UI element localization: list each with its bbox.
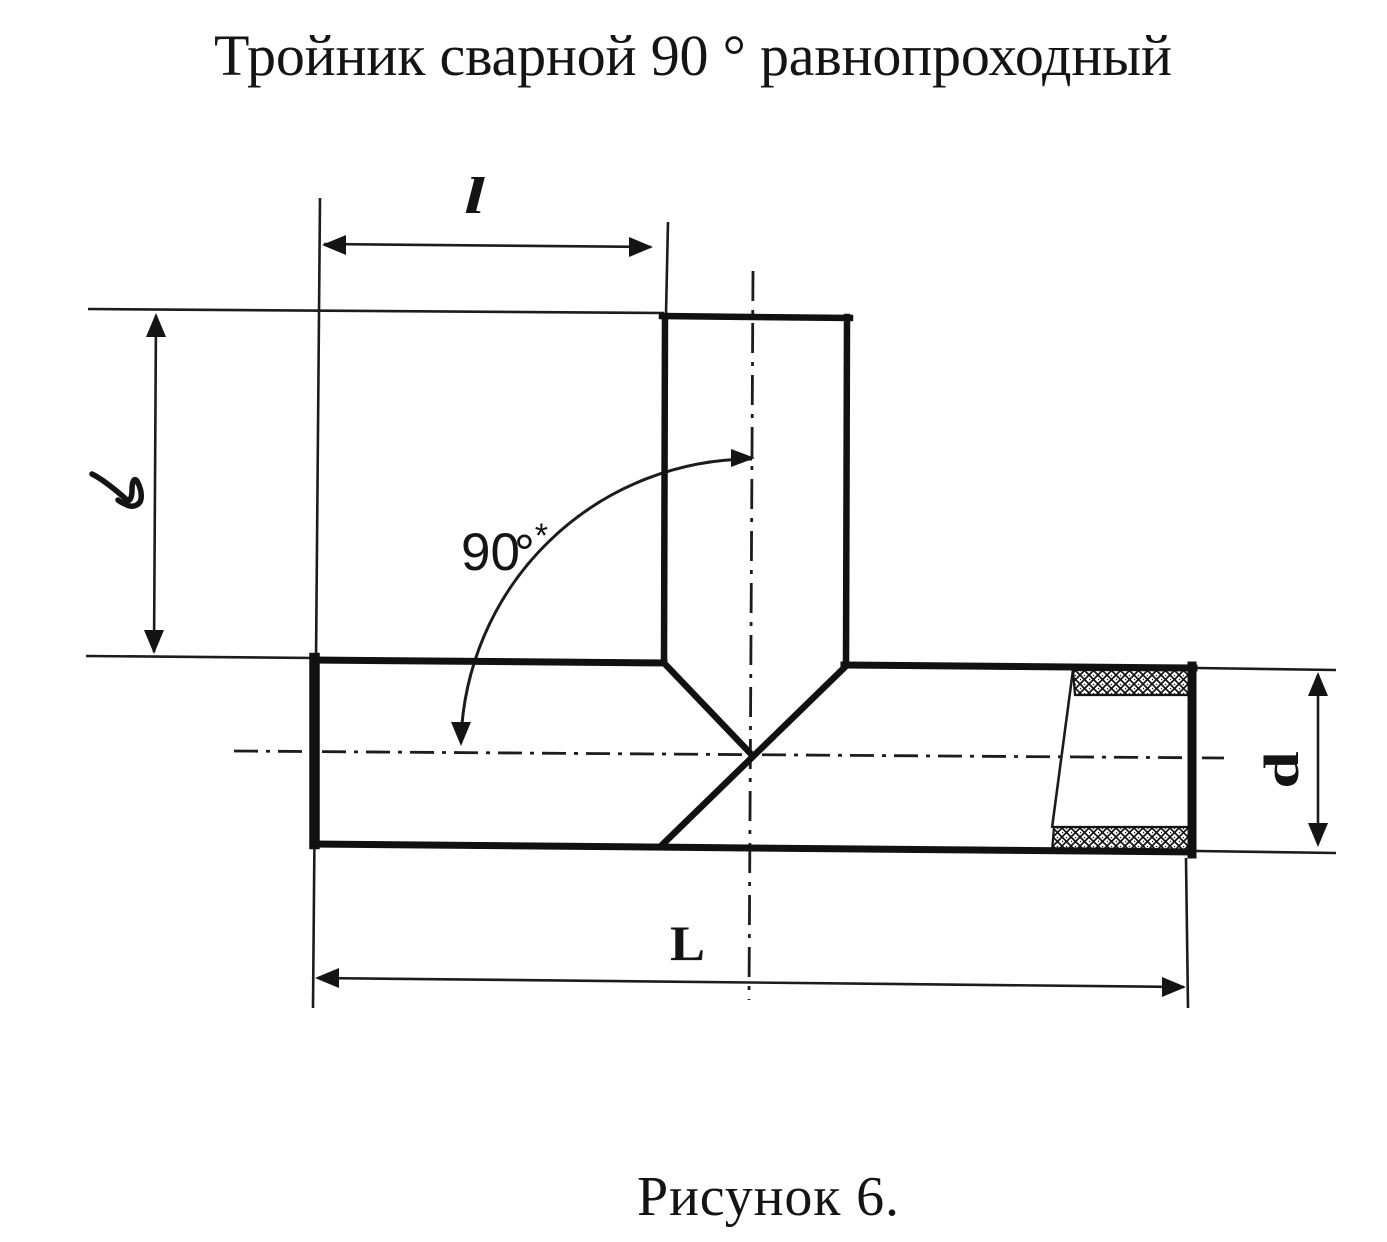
svg-text:L: L <box>670 915 705 971</box>
svg-text:d: d <box>1253 751 1309 789</box>
svg-text:90°*: 90°* <box>461 517 548 583</box>
svg-text:Рисунок 6.: Рисунок 6. <box>637 1166 899 1228</box>
svg-text:Тройник сварной 90 ° равнопрох: Тройник сварной 90 ° равнопроходный <box>214 23 1172 88</box>
svg-text:l: l <box>464 167 485 225</box>
